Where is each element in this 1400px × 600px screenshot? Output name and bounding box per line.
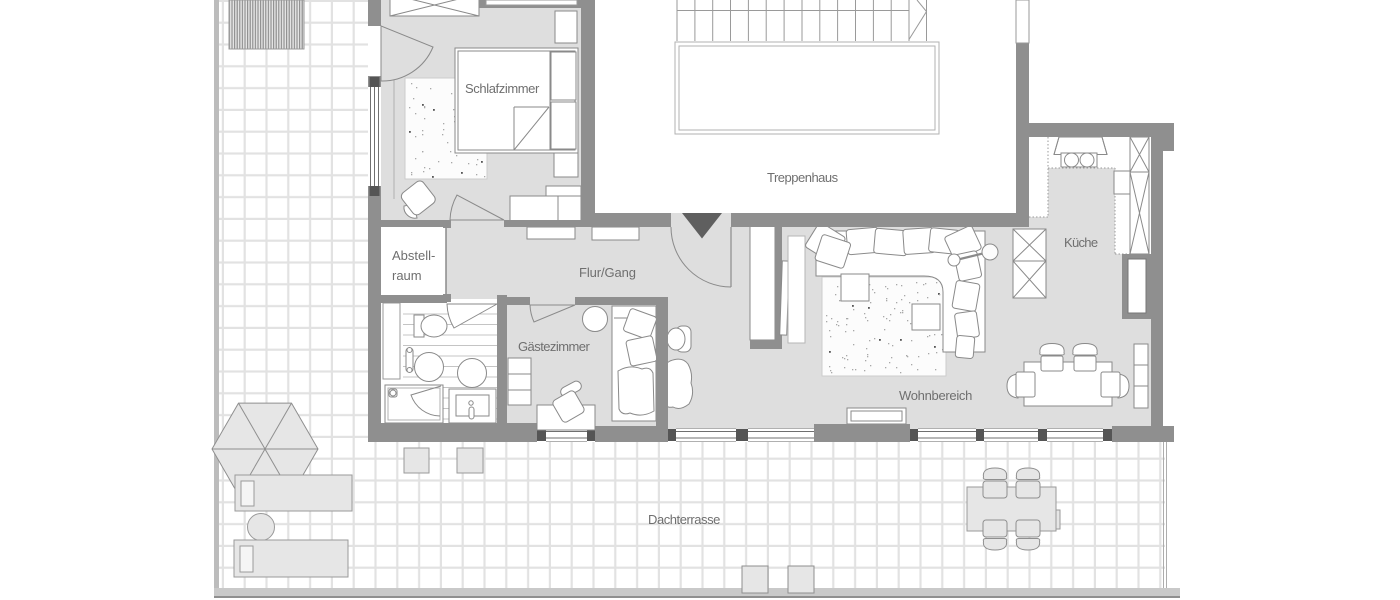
svg-text:raum: raum bbox=[392, 268, 422, 283]
svg-text:Schlafzimmer: Schlafzimmer bbox=[465, 81, 540, 96]
svg-text:Wohnbereich: Wohnbereich bbox=[899, 388, 972, 403]
svg-text:Treppenhaus: Treppenhaus bbox=[767, 170, 839, 185]
svg-text:Flur/Gang: Flur/Gang bbox=[579, 265, 636, 280]
svg-text:Dachterrasse: Dachterrasse bbox=[648, 512, 720, 527]
svg-text:Abstell-: Abstell- bbox=[392, 248, 435, 263]
svg-text:Gästezimmer: Gästezimmer bbox=[518, 339, 590, 354]
svg-text:Küche: Küche bbox=[1064, 235, 1098, 250]
